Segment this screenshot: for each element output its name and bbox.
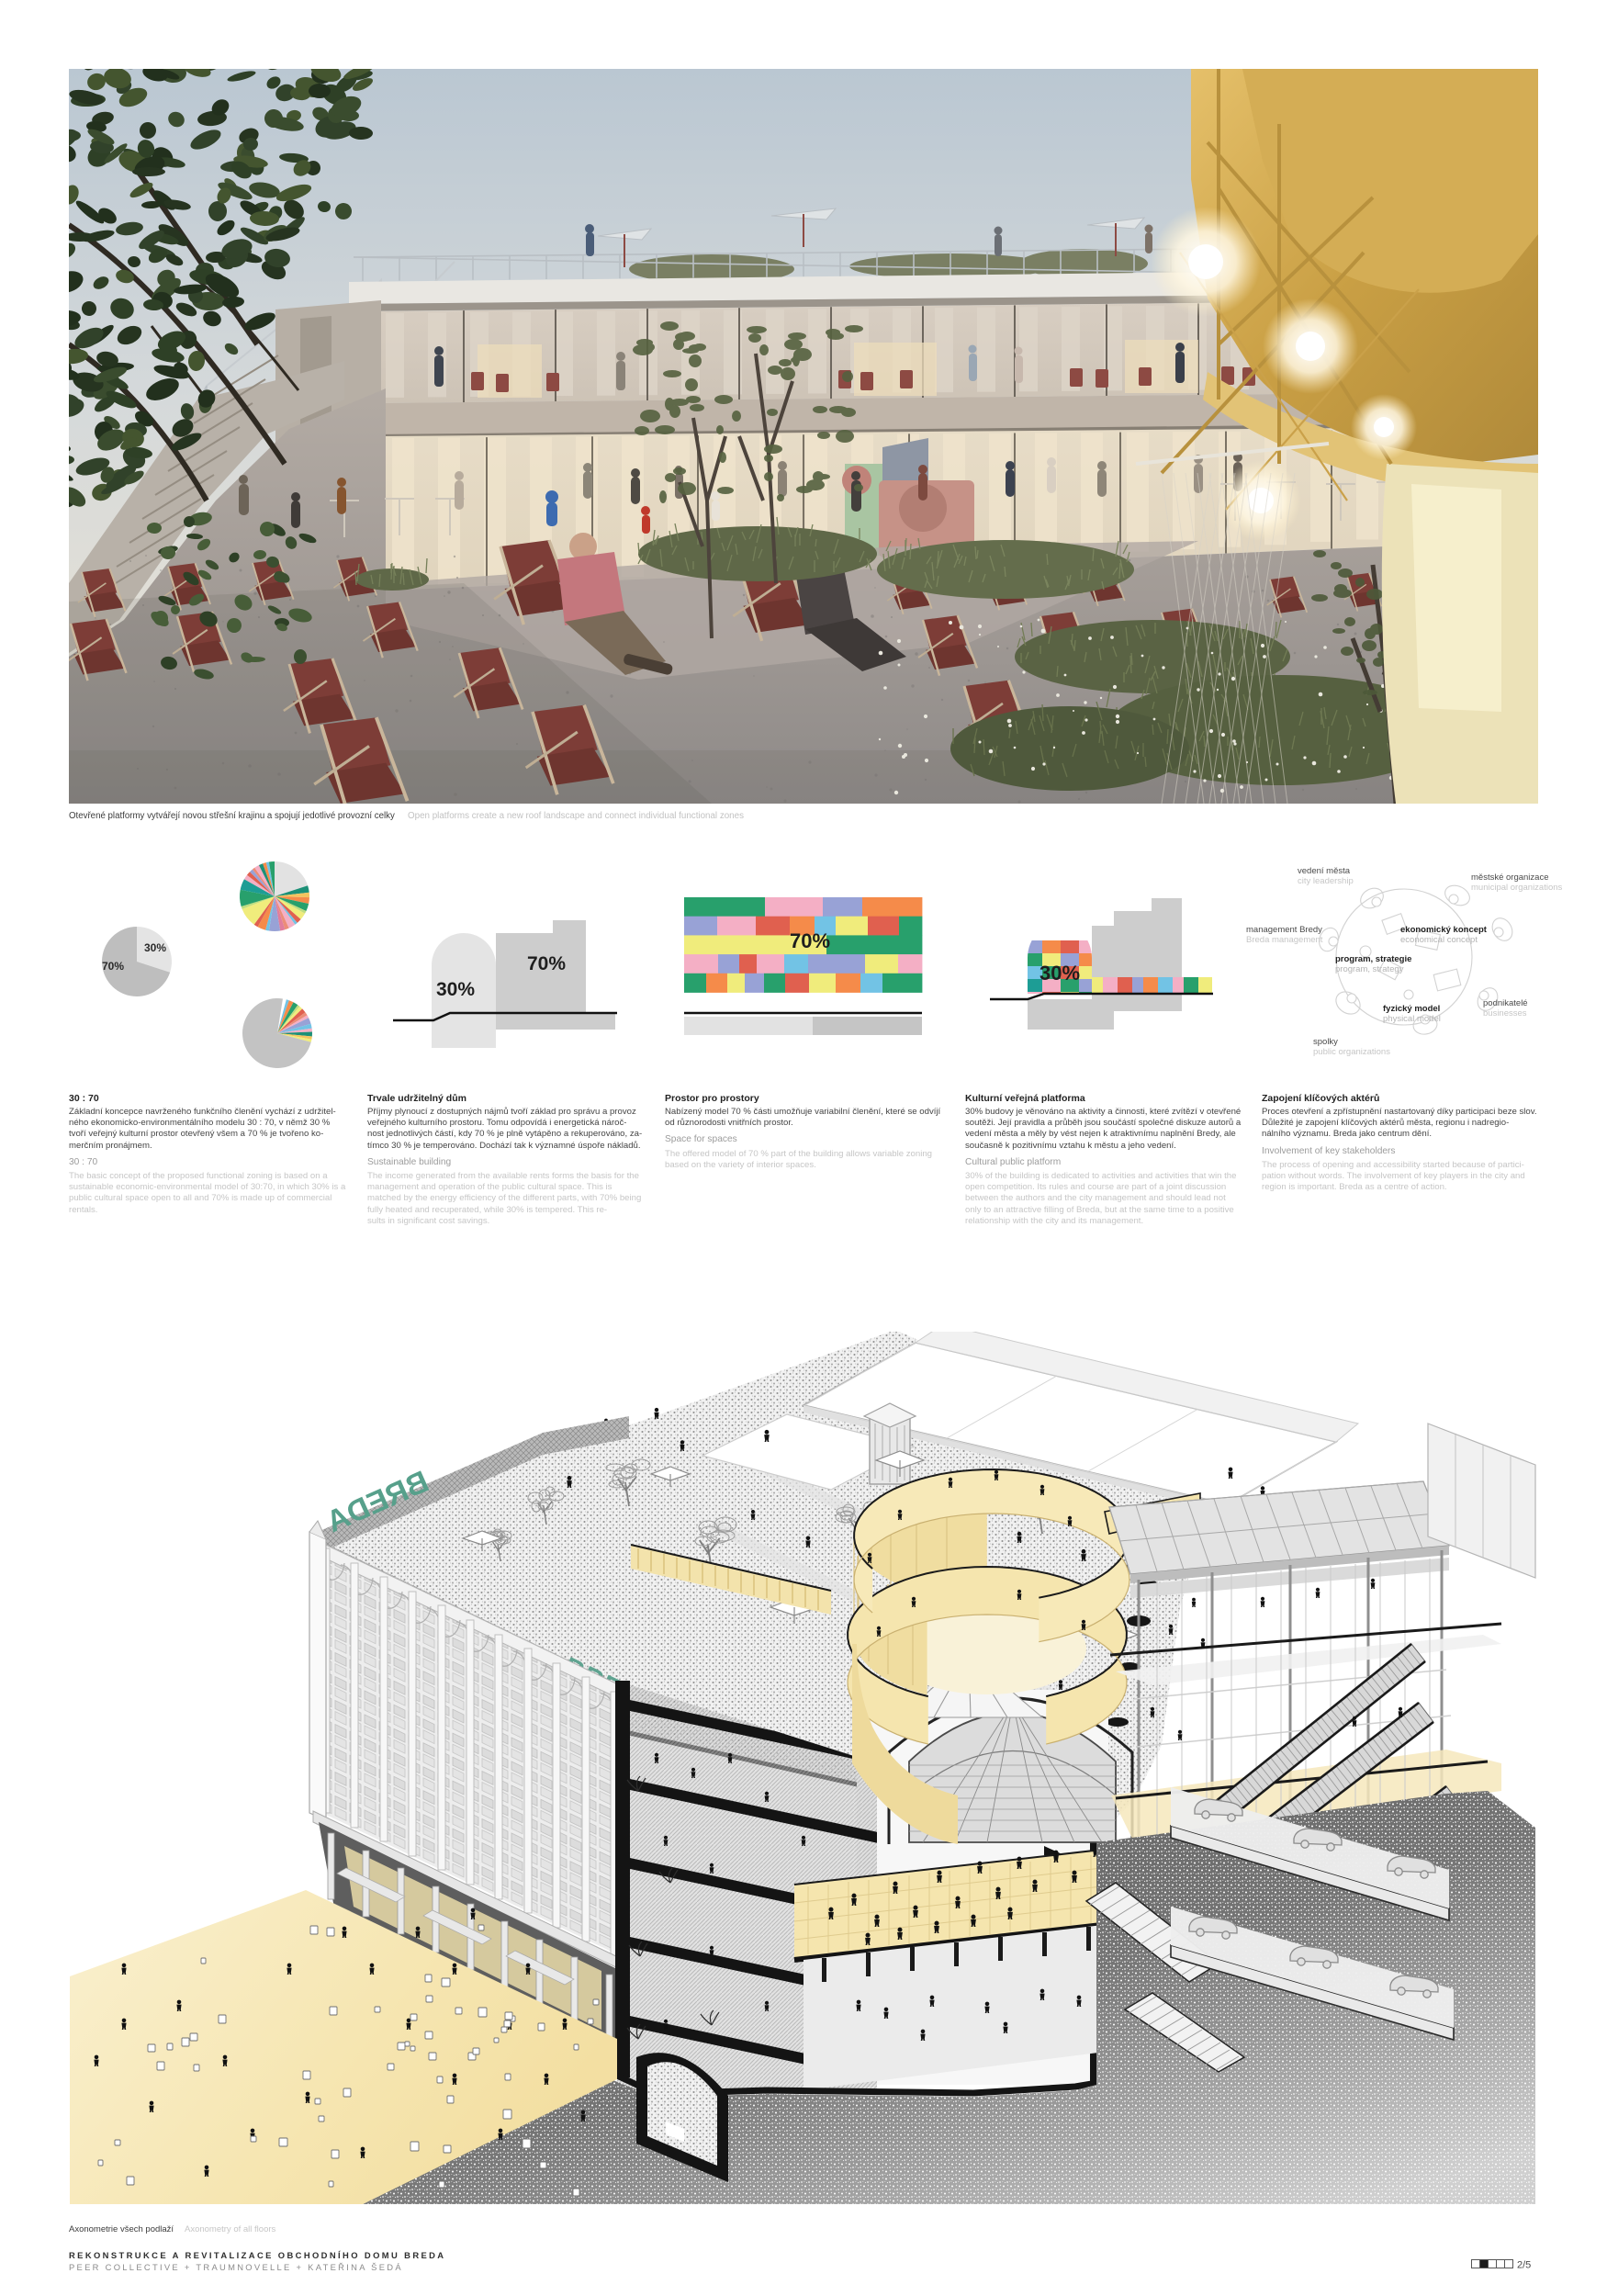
svg-text:Breda management: Breda management bbox=[1246, 935, 1323, 945]
svg-text:vedení města: vedení města bbox=[1298, 866, 1351, 876]
svg-text:ekonomický koncept: ekonomický koncept bbox=[1400, 925, 1488, 935]
svg-text:2/5: 2/5 bbox=[1517, 2260, 1531, 2271]
svg-text:30%: 30% bbox=[1039, 962, 1080, 985]
svg-text:businesses: businesses bbox=[1483, 1008, 1527, 1019]
svg-text:70%: 70% bbox=[527, 953, 566, 974]
svg-text:městské organizace: městské organizace bbox=[1471, 872, 1548, 883]
svg-text:70%: 70% bbox=[790, 929, 830, 952]
svg-text:public organizations: public organizations bbox=[1313, 1047, 1390, 1057]
svg-text:physical model: physical model bbox=[1383, 1014, 1441, 1024]
svg-text:city leadership: city leadership bbox=[1298, 876, 1354, 886]
svg-text:economical concept: economical concept bbox=[1400, 935, 1478, 945]
svg-text:30%: 30% bbox=[436, 979, 475, 1000]
svg-text:spolky: spolky bbox=[1313, 1037, 1338, 1047]
svg-text:program, strategie: program, strategie bbox=[1335, 954, 1411, 964]
svg-text:municipal organizations: municipal organizations bbox=[1471, 883, 1563, 893]
svg-text:management Bredy: management Bredy bbox=[1246, 925, 1322, 935]
svg-text:30%: 30% bbox=[144, 941, 166, 954]
svg-text:fyzický model: fyzický model bbox=[1383, 1004, 1440, 1014]
svg-text:program, strategy: program, strategy bbox=[1335, 964, 1404, 974]
svg-text:podnikatelé: podnikatelé bbox=[1483, 998, 1528, 1008]
svg-text:70%: 70% bbox=[102, 960, 124, 973]
